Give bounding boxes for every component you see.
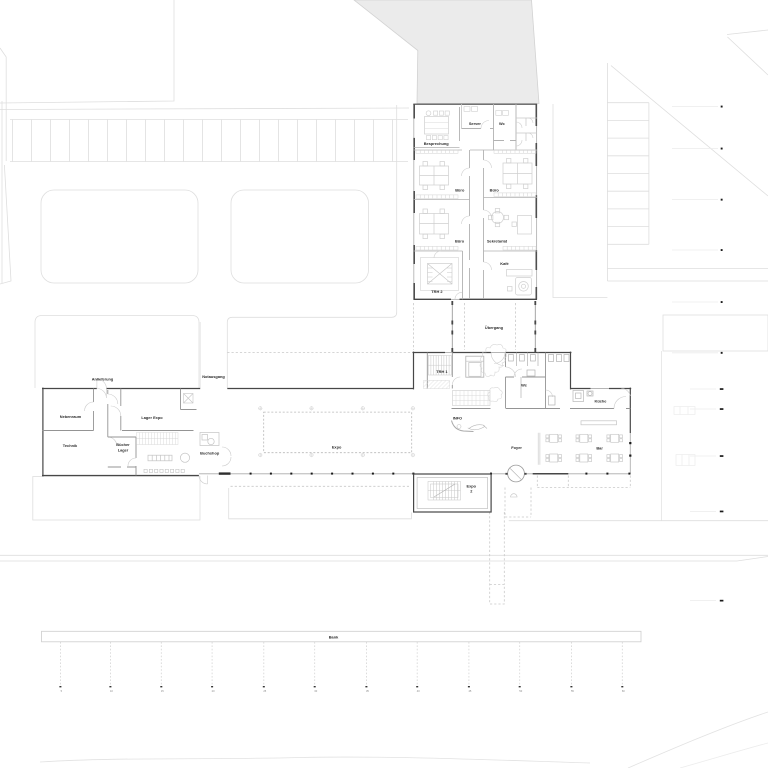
svg-text:TRH 1: TRH 1 — [436, 369, 448, 374]
svg-text:Nebenraum: Nebenraum — [60, 414, 82, 419]
svg-text:INFO: INFO — [453, 416, 462, 421]
svg-text:Übergang: Übergang — [485, 325, 504, 330]
svg-text:Server: Server — [469, 121, 482, 126]
svg-text:Bank: Bank — [329, 635, 339, 640]
svg-text:Büro: Büro — [490, 187, 500, 192]
svg-text:Wc: Wc — [521, 382, 528, 387]
svg-text:Notausgang: Notausgang — [202, 374, 225, 379]
svg-text:Sekretariat: Sekretariat — [487, 238, 508, 243]
svg-text:Lager Expo: Lager Expo — [141, 415, 163, 420]
svg-text:Foyer: Foyer — [511, 445, 522, 450]
svg-text:Besprechung: Besprechung — [424, 141, 449, 146]
svg-text:Wc: Wc — [499, 121, 506, 126]
svg-text:Buchshop: Buchshop — [200, 451, 220, 456]
svg-text:Büro: Büro — [455, 187, 465, 192]
svg-text:Bücher: Bücher — [116, 442, 130, 447]
svg-text:Kafé: Kafé — [500, 261, 509, 266]
svg-text:Technik: Technik — [63, 443, 78, 448]
svg-text:Lager: Lager — [118, 447, 129, 452]
svg-text:Büro: Büro — [455, 238, 465, 243]
svg-text:Anlieferung: Anlieferung — [92, 377, 114, 382]
svg-text:Küche: Küche — [595, 398, 608, 403]
svg-text:Expo: Expo — [332, 445, 342, 450]
svg-text:TRH 2: TRH 2 — [431, 289, 443, 294]
svg-text:Bar: Bar — [596, 445, 603, 450]
